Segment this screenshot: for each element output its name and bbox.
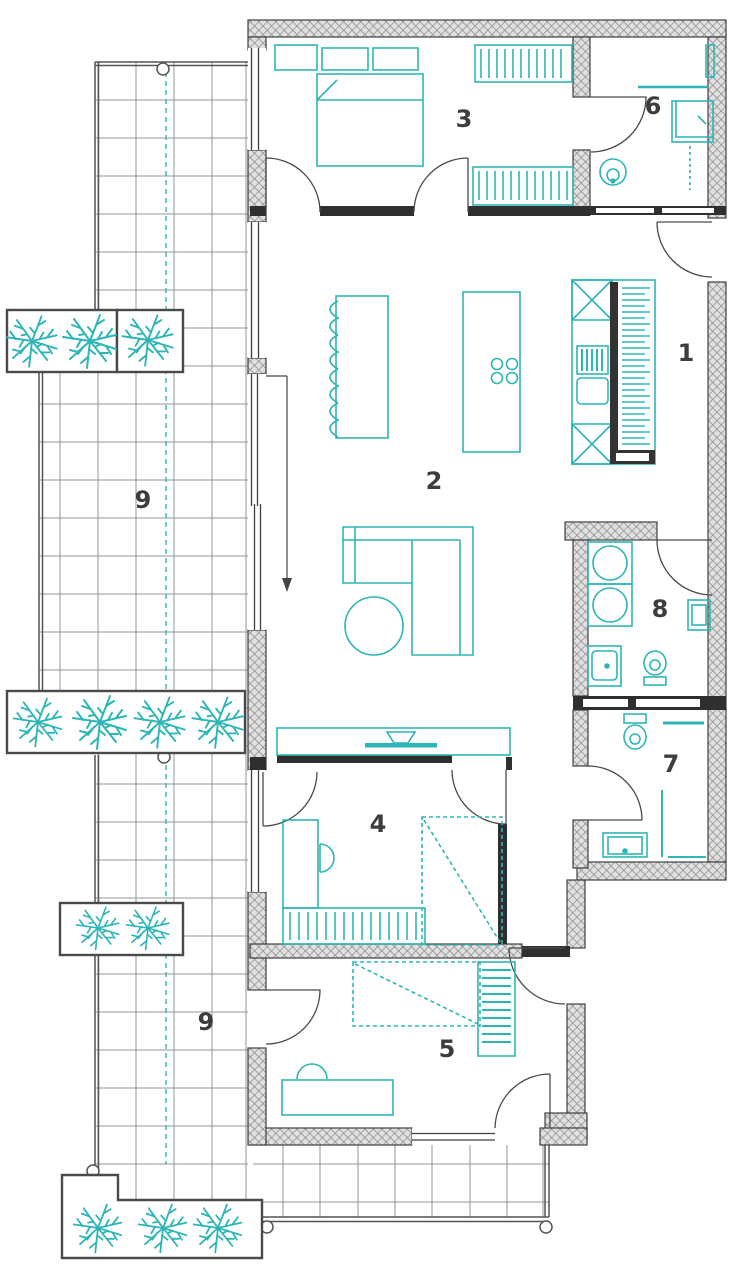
room-label-bedroom-3: 5 <box>439 1035 456 1063</box>
room-label-terrace-lower: 9 <box>198 1008 215 1036</box>
floor-plan-page: 1 2 3 4 5 6 7 8 9 9 <box>0 0 746 1280</box>
room-label-bathroom-1: 6 <box>645 92 662 120</box>
room-label-bedroom-2: 4 <box>370 810 387 838</box>
room-label-bathroom-2: 7 <box>663 750 680 778</box>
coffee-table <box>345 597 403 655</box>
room-label-bedroom-1: 3 <box>456 105 473 133</box>
room-label-utility-bathroom: 8 <box>652 595 669 623</box>
planter-box <box>60 903 183 955</box>
room-label-terrace-upper: 9 <box>135 486 152 514</box>
desk <box>282 1080 393 1115</box>
floor-plan: 1 2 3 4 5 6 7 8 9 9 <box>0 0 746 1280</box>
room-label-kitchen: 1 <box>678 339 695 367</box>
tv-unit <box>277 728 510 755</box>
room-label-living-dining: 2 <box>426 467 443 495</box>
